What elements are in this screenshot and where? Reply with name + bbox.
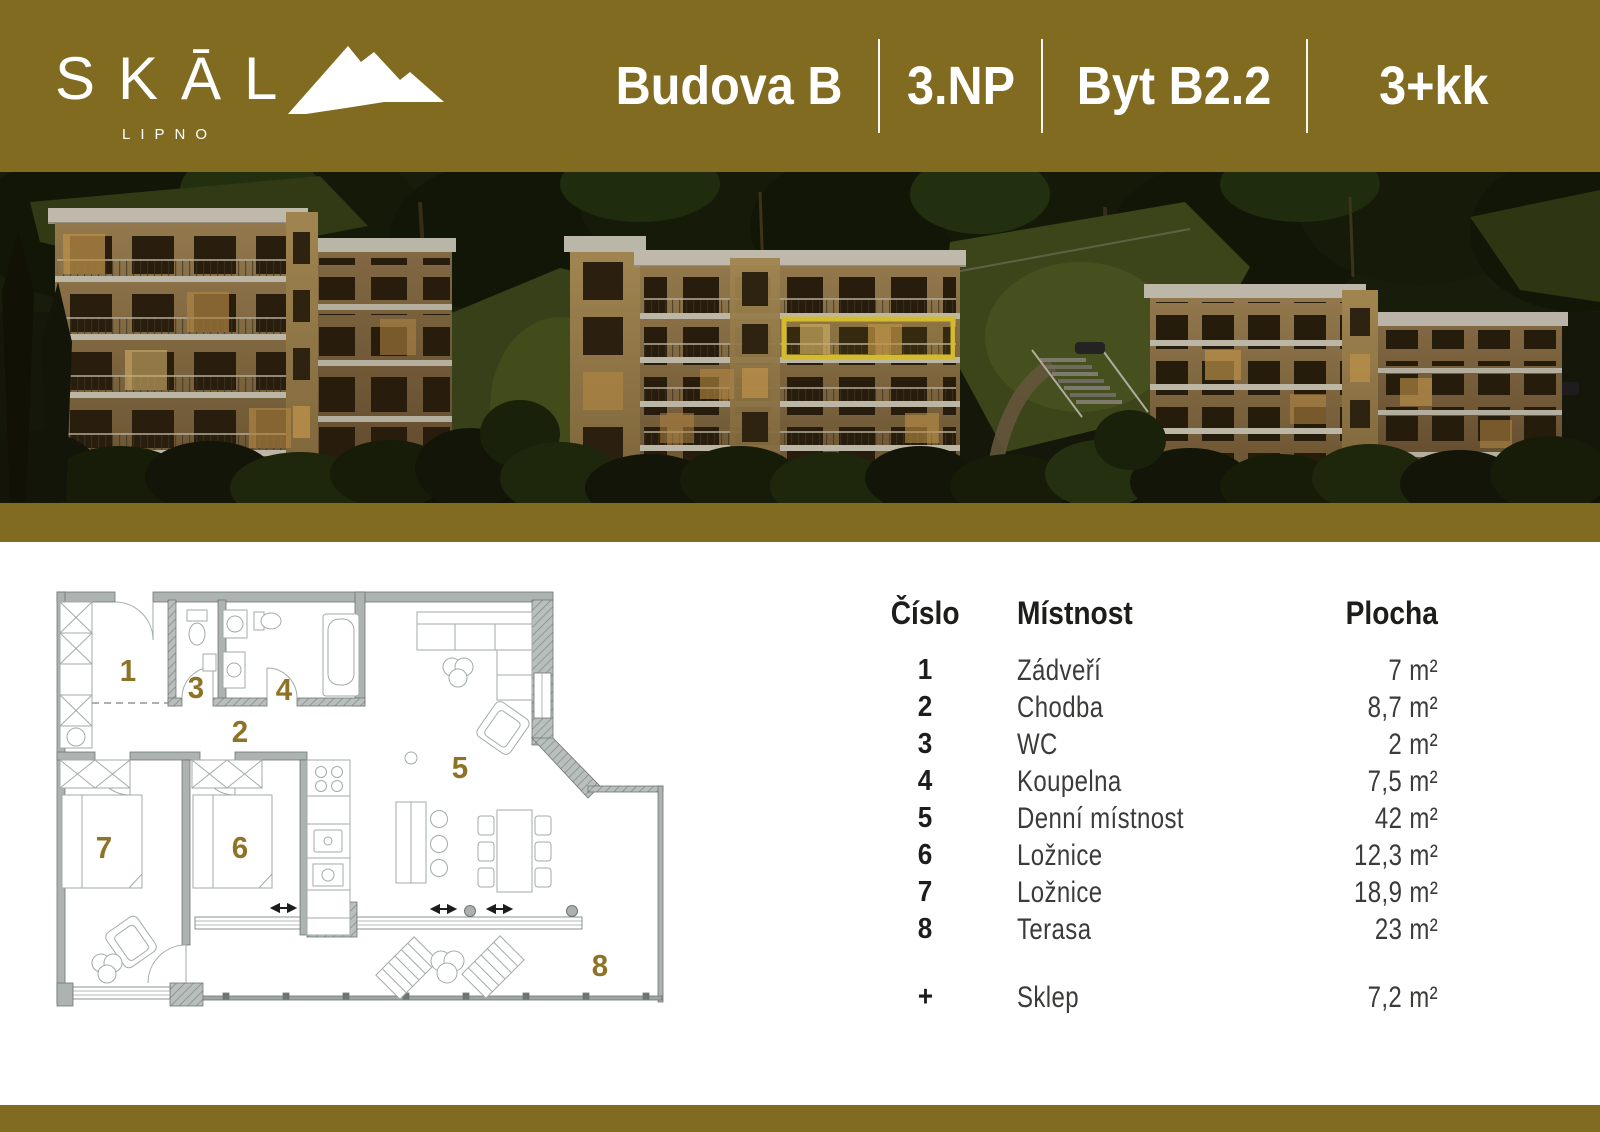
lamp-icon xyxy=(405,752,417,764)
legend-cell-room: Ložnice xyxy=(983,839,1248,873)
legend-row-cellar: + Sklep 7,2 m² xyxy=(868,979,1438,1016)
legend-row: 8 Terasa 23 m² xyxy=(868,911,1438,948)
legend-cell-area: 12,3 m² xyxy=(1248,839,1438,873)
site-render xyxy=(0,172,1600,503)
unit-info-row: Budova B 3.NP Byt B2.2 3+kk xyxy=(580,0,1560,172)
legend-row: 6 Ložnice 12,3 m² xyxy=(868,837,1438,874)
legend-cell-area: 18,9 m² xyxy=(1248,876,1438,910)
dining-table-icon xyxy=(478,810,551,892)
legend-row: 2 Chodba 8,7 m² xyxy=(868,689,1438,726)
unit-label: Byt B2.2 xyxy=(1043,55,1305,117)
armchair-icon xyxy=(475,699,532,756)
legend-cell-room: Denní místnost xyxy=(983,802,1248,836)
legend-cell-room: Koupelna xyxy=(983,765,1248,799)
divider xyxy=(878,39,880,133)
legend-cell-area: 7,5 m² xyxy=(1248,765,1438,799)
site-photo xyxy=(0,172,1600,503)
plant-icon xyxy=(431,951,464,983)
legend-cell-area: 8,7 m² xyxy=(1248,691,1438,725)
divider xyxy=(1041,39,1043,133)
legend-cell-number: 5 xyxy=(868,802,983,835)
kitchen-counter-icon xyxy=(307,760,350,935)
building-label: Budova B xyxy=(580,55,878,117)
lounger-icon xyxy=(462,936,524,998)
room-label-2: 2 xyxy=(232,714,248,750)
footer-bar xyxy=(0,1105,1600,1132)
brand-wordmark: SKĀL xyxy=(55,44,300,113)
plant-icon xyxy=(443,658,473,687)
legend-cell-area: 23 m² xyxy=(1248,913,1438,947)
entry-wardrobe-icon xyxy=(60,602,92,748)
door-post xyxy=(567,906,578,917)
bedroom6-furniture xyxy=(192,760,272,888)
datasheet-page: SKĀL LIPNO Budova B 3.NP Byt B2.2 3+kk xyxy=(0,0,1600,1132)
legend-cell-room: WC xyxy=(983,728,1248,762)
legend-header-number: Číslo xyxy=(868,595,983,632)
room-label-6: 6 xyxy=(232,830,248,866)
legend-cell-room: Sklep xyxy=(983,981,1248,1015)
legend-row: 7 Ložnice 18,9 m² xyxy=(868,874,1438,911)
room-label-4: 4 xyxy=(276,672,292,708)
room-label-7: 7 xyxy=(96,830,112,866)
legend-cell-number: 4 xyxy=(868,765,983,798)
legend-cell-area: 2 m² xyxy=(1248,728,1438,762)
door-post xyxy=(465,906,476,917)
legend-cell-number: 7 xyxy=(868,876,983,909)
legend-cell-area: 7,2 m² xyxy=(1248,981,1438,1015)
legend-cell-room: Chodba xyxy=(983,691,1248,725)
divider xyxy=(1306,39,1308,133)
wc-toilet-icon xyxy=(187,610,216,671)
legend-row: 4 Koupelna 7,5 m² xyxy=(868,763,1438,800)
bedroom7-furniture xyxy=(60,760,142,888)
legend-cell-number: 1 xyxy=(868,654,983,687)
room-label-5: 5 xyxy=(452,750,468,786)
room-label-8: 8 xyxy=(592,948,608,984)
legend-header-room: Místnost xyxy=(983,595,1248,632)
legend-cell-number: 3 xyxy=(868,728,983,761)
room-label-3: 3 xyxy=(188,670,204,706)
room-label-1: 1 xyxy=(120,653,136,689)
gold-divider-strip xyxy=(0,503,1600,542)
legend-cell-number: 2 xyxy=(868,691,983,724)
legend-cell-room: Zádveří xyxy=(983,654,1248,688)
legend-row: 5 Denní místnost 42 m² xyxy=(868,800,1438,837)
floor-label: 3.NP xyxy=(880,55,1041,117)
legend-header-area: Plocha xyxy=(1248,595,1438,632)
lounger-icon xyxy=(376,937,438,999)
header-bar: SKĀL LIPNO Budova B 3.NP Byt B2.2 3+kk xyxy=(0,0,1600,172)
sofa-icon xyxy=(417,612,532,700)
legend-cell-room: Terasa xyxy=(983,913,1248,947)
room-legend: Číslo Místnost Plocha 1 Zádveří 7 m² 2 C… xyxy=(868,590,1438,1016)
mountain-logo-icon xyxy=(284,38,448,122)
legend-cell-number: 6 xyxy=(868,839,983,872)
legend-header-row: Číslo Místnost Plocha xyxy=(868,590,1438,636)
legend-cell-area: 7 m² xyxy=(1248,654,1438,688)
floor-plan-drawing xyxy=(55,578,667,1008)
legend-cell-room: Ložnice xyxy=(983,876,1248,910)
plant-icon xyxy=(92,954,122,983)
disposition-label: 3+kk xyxy=(1308,55,1560,117)
floor-plan: 1 2 3 4 5 6 7 8 xyxy=(55,578,667,1008)
legend-cell-area: 42 m² xyxy=(1248,802,1438,836)
brand-subtitle: LIPNO xyxy=(122,126,217,143)
legend-row: 1 Zádveří 7 m² xyxy=(868,652,1438,689)
legend-cell-number: + xyxy=(868,981,983,1014)
legend-cell-number: 8 xyxy=(868,913,983,946)
legend-row: 3 WC 2 m² xyxy=(868,726,1438,763)
kitchen-island-icon xyxy=(396,802,448,883)
